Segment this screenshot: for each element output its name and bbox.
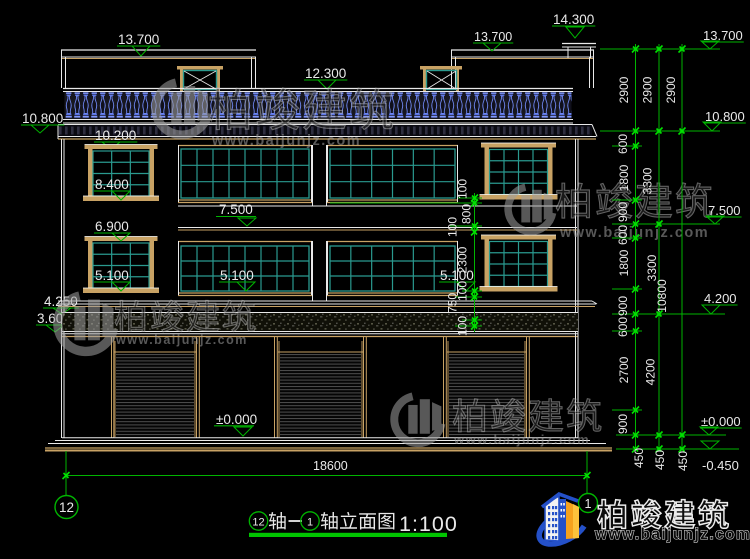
svg-text:2300: 2300: [456, 246, 470, 273]
svg-text:5.100: 5.100: [95, 268, 129, 283]
svg-text:www.baijunjz.com: www.baijunjz.com: [594, 526, 750, 543]
svg-text:±0.000: ±0.000: [216, 412, 257, 427]
svg-text:6.900: 6.900: [95, 219, 129, 234]
svg-text:900: 900: [616, 414, 630, 434]
svg-text:13.700: 13.700: [474, 30, 512, 44]
svg-text:3300: 3300: [645, 254, 659, 281]
svg-text:8.400: 8.400: [95, 177, 129, 192]
svg-text:10800: 10800: [655, 279, 669, 313]
svg-text:2900: 2900: [617, 76, 631, 103]
svg-text:750: 750: [446, 293, 460, 313]
svg-text:4200: 4200: [644, 358, 658, 385]
svg-text:100: 100: [456, 179, 470, 199]
svg-text:800: 800: [460, 204, 474, 224]
svg-text:www.baijunjz.com: www.baijunjz.com: [115, 333, 248, 347]
svg-text:450: 450: [632, 448, 646, 468]
svg-text:1800: 1800: [617, 249, 631, 276]
svg-text:12: 12: [59, 500, 74, 515]
svg-text:1800: 1800: [617, 164, 631, 191]
svg-text:1: 1: [307, 517, 313, 529]
svg-text:100: 100: [456, 316, 470, 336]
svg-text:5.100: 5.100: [220, 268, 254, 283]
svg-text:-0.450: -0.450: [702, 458, 739, 473]
svg-text:900: 900: [616, 296, 630, 316]
svg-text:12: 12: [252, 517, 264, 529]
svg-text:450: 450: [676, 451, 690, 471]
svg-text:2900: 2900: [664, 76, 678, 103]
svg-text:1:100: 1:100: [399, 512, 458, 536]
svg-text:10.800: 10.800: [22, 111, 63, 126]
svg-text:450: 450: [653, 450, 667, 470]
svg-text:3300: 3300: [641, 167, 655, 194]
svg-text:www.baijunjz.com: www.baijunjz.com: [211, 133, 361, 149]
svg-text:2900: 2900: [641, 76, 655, 103]
svg-text:600: 600: [616, 225, 630, 245]
svg-text:13.700: 13.700: [118, 32, 159, 47]
svg-text:600: 600: [616, 134, 630, 154]
svg-text:1: 1: [585, 497, 592, 511]
svg-text:4.200: 4.200: [704, 291, 737, 306]
svg-text:100: 100: [446, 217, 460, 237]
svg-text:7.500: 7.500: [219, 202, 253, 217]
svg-text:600: 600: [616, 317, 630, 337]
svg-text:18600: 18600: [313, 459, 348, 473]
svg-text:2700: 2700: [617, 356, 631, 383]
svg-text:14.300: 14.300: [553, 12, 594, 27]
svg-text:www.baijunjz.com: www.baijunjz.com: [453, 432, 590, 447]
svg-text:12.300: 12.300: [305, 66, 346, 81]
svg-text:900: 900: [616, 202, 630, 222]
svg-text:10.200: 10.200: [95, 128, 136, 143]
